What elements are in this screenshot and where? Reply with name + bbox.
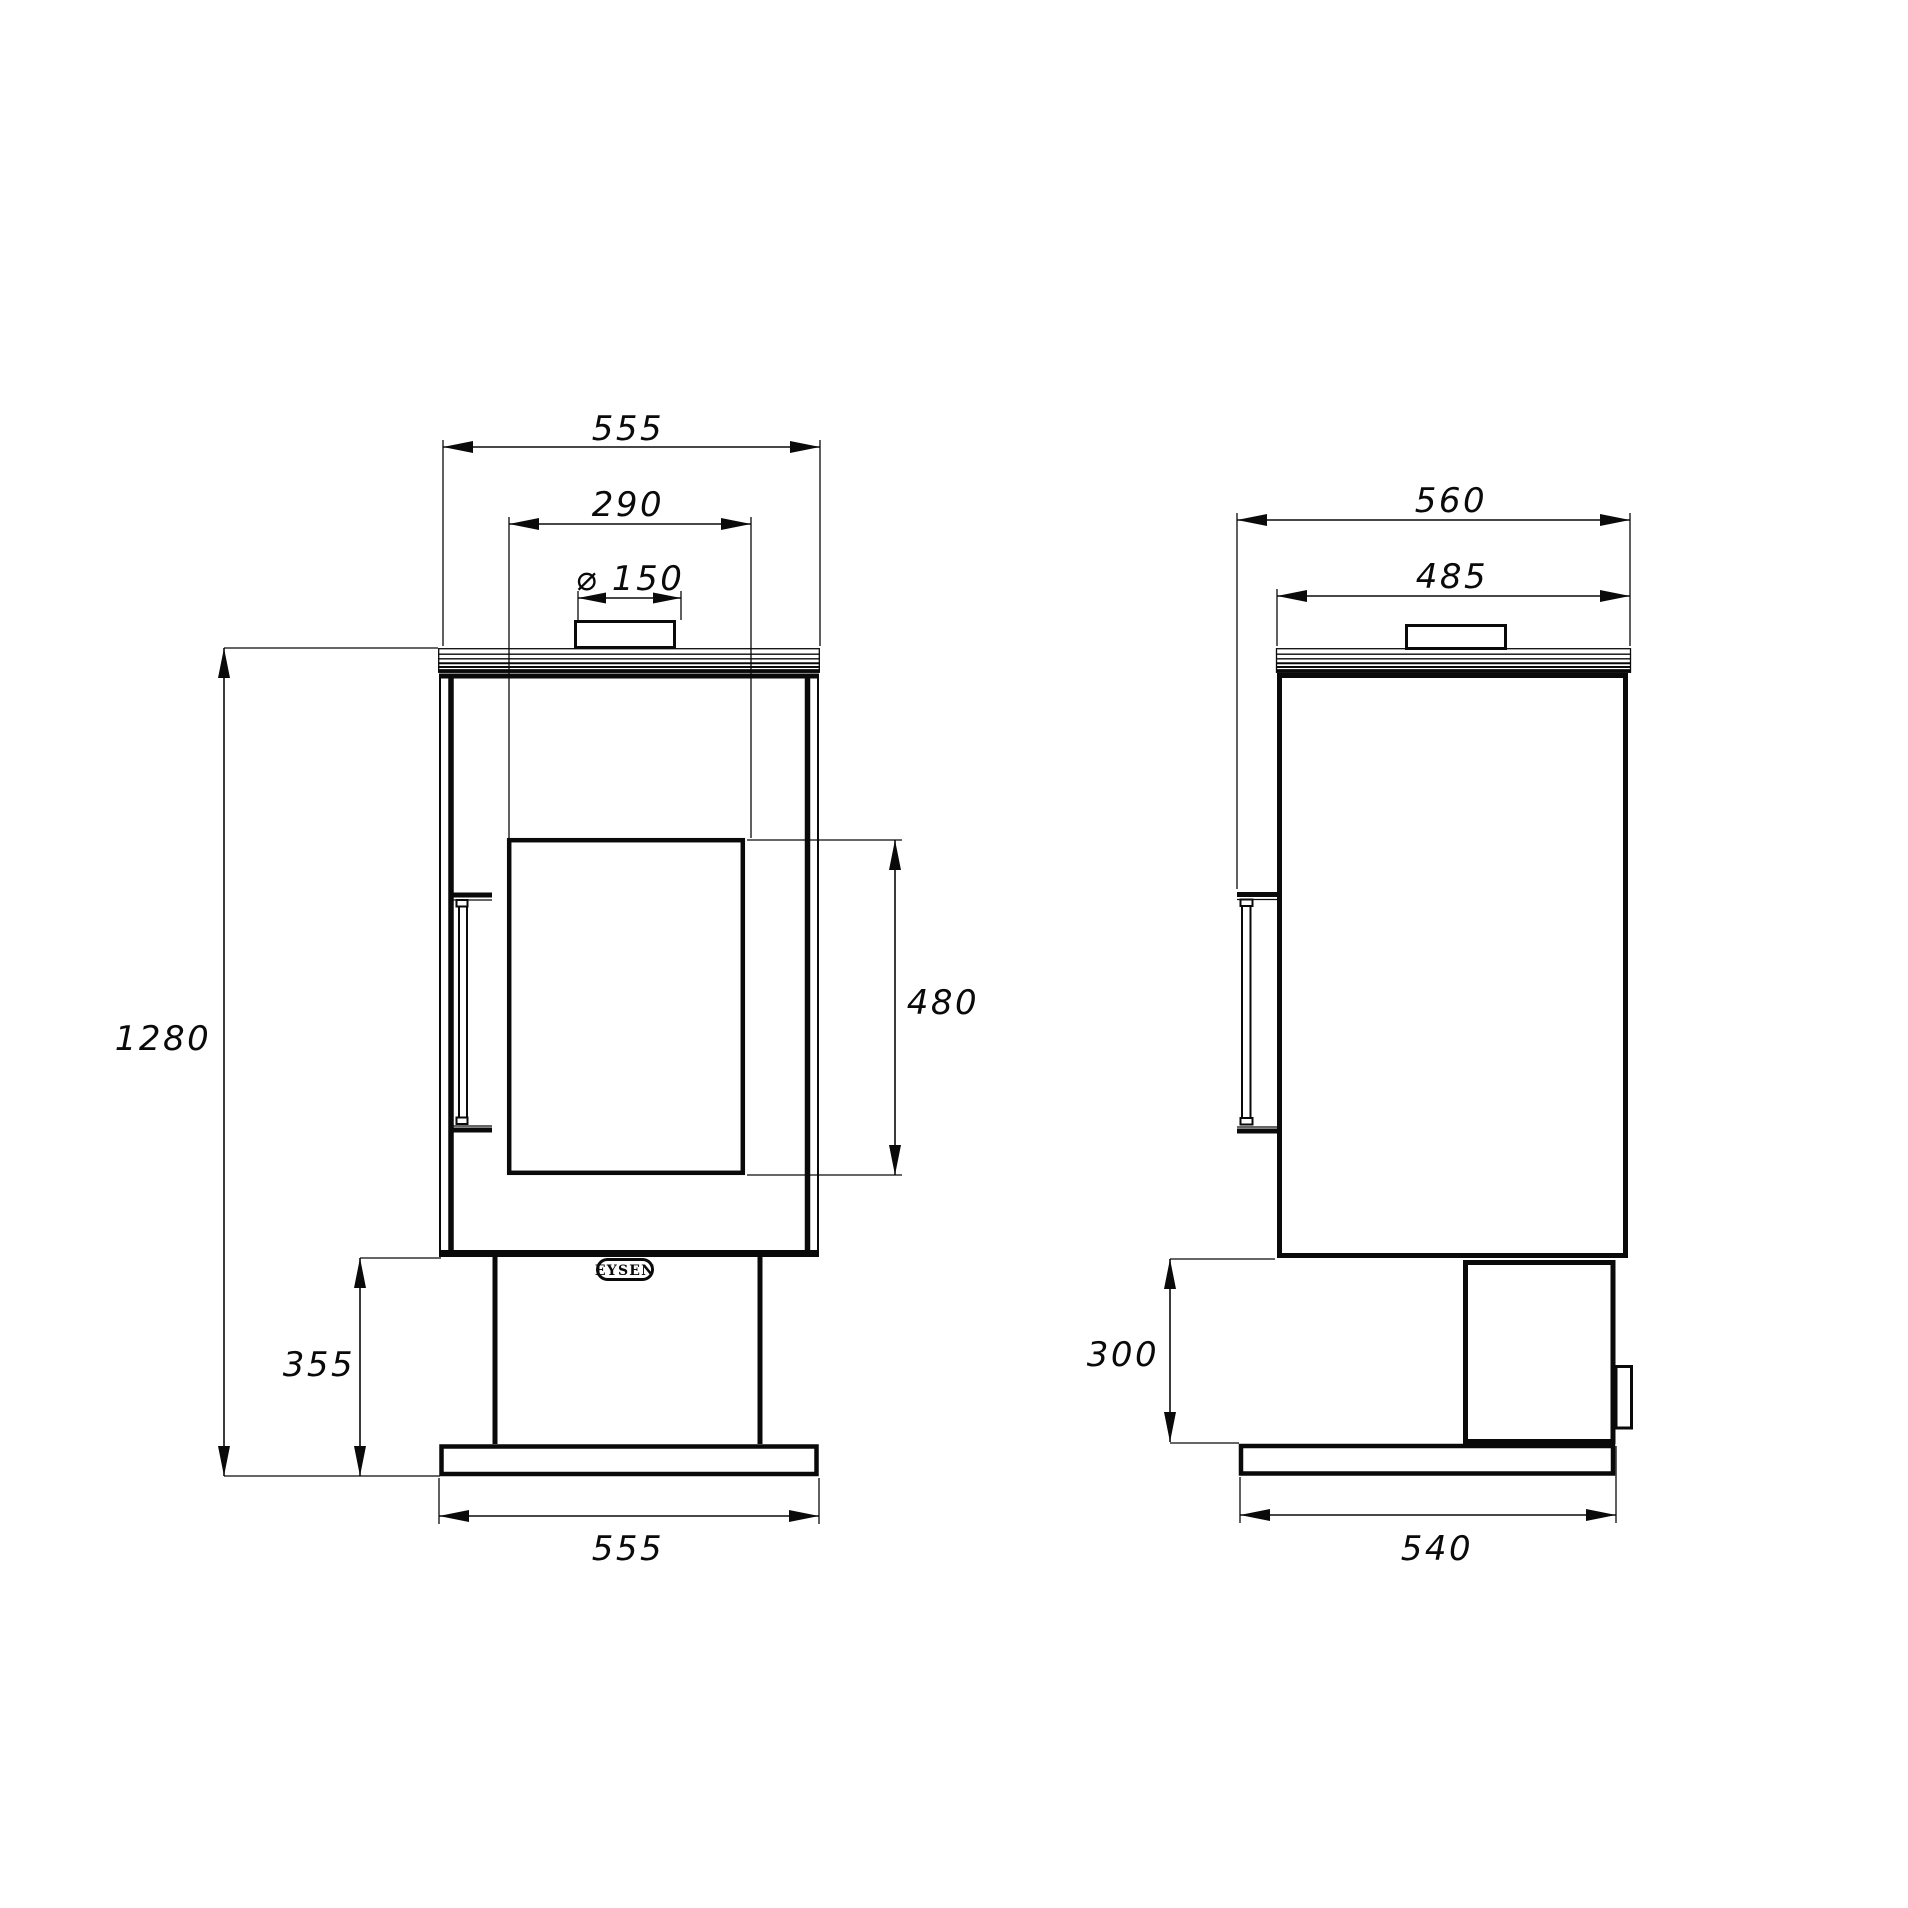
front-base-plate — [442, 1447, 817, 1475]
arrow-up-icon — [354, 1258, 366, 1288]
side-top-plate — [1276, 649, 1631, 673]
dimension-side-base-depth: 540 — [1240, 1446, 1616, 1569]
dimension-front-top-width: 555 — [443, 409, 820, 646]
dim-side-base-depth-label: 540 — [1401, 1529, 1473, 1569]
dimension-glass-height: 480 — [747, 840, 979, 1175]
dimension-glass-width: 290 — [509, 485, 751, 838]
arrow-right-icon — [790, 441, 820, 453]
arrow-right-icon — [721, 518, 751, 530]
front-view: EYSEN — [438, 622, 820, 1475]
arrow-left-icon — [1237, 514, 1267, 526]
arrow-up-icon — [218, 648, 230, 678]
side-door-handle — [1237, 892, 1279, 1134]
front-body-outline — [440, 675, 818, 1256]
arrow-up-icon — [889, 840, 901, 870]
arrow-left-icon — [1240, 1509, 1270, 1521]
arrow-up-icon — [1164, 1259, 1176, 1289]
front-pedestal — [495, 1257, 760, 1444]
dim-front-base-height-label: 355 — [283, 1345, 355, 1385]
arrow-down-icon — [889, 1145, 901, 1175]
dimension-side-base-height: 300 — [1087, 1259, 1275, 1443]
dim-front-overall-height-label: 1280 — [115, 1019, 212, 1059]
brand-logo-text: EYSEN — [595, 1263, 655, 1279]
side-pedestal — [1466, 1263, 1614, 1442]
side-ash-knob — [1616, 1367, 1632, 1429]
front-body — [439, 675, 819, 1256]
dim-side-overall-depth-label: 560 — [1415, 481, 1487, 521]
arrow-left-icon — [509, 518, 539, 530]
front-top-plate — [438, 649, 820, 673]
dimension-side-overall-depth: 560 — [1237, 481, 1630, 889]
dim-side-body-depth-label: 485 — [1416, 557, 1488, 597]
dim-front-top-width-label: 555 — [592, 409, 664, 449]
dimension-front-overall-height: 1280 — [115, 648, 440, 1476]
dimension-front-base-height: 355 — [283, 1258, 441, 1476]
arrow-left-icon — [443, 441, 473, 453]
brand-badge: EYSEN — [595, 1260, 655, 1280]
arrow-left-icon — [1277, 590, 1307, 602]
dim-glass-width-label: 290 — [592, 485, 664, 525]
side-view — [1237, 626, 1632, 1474]
dim-front-base-width-label: 555 — [592, 1529, 664, 1569]
dim-glass-height-label: 480 — [907, 983, 979, 1023]
dimension-flue-diameter: ⌀ 150 — [576, 559, 685, 620]
front-flue-collar — [576, 622, 675, 648]
side-body-outline — [1280, 676, 1626, 1256]
arrow-right-icon — [789, 1510, 819, 1522]
drawing-page: EYSEN — [0, 0, 1908, 1908]
dimension-side-body-depth: 485 — [1277, 557, 1630, 646]
arrow-right-icon — [1600, 590, 1630, 602]
front-door-handle — [452, 893, 492, 1133]
arrow-down-icon — [354, 1446, 366, 1476]
arrow-down-icon — [1164, 1412, 1176, 1442]
front-door-glass — [509, 840, 743, 1173]
arrow-left-icon — [439, 1510, 469, 1522]
dim-flue-diameter-label: ⌀ 150 — [576, 559, 685, 599]
dim-side-base-height-label: 300 — [1087, 1335, 1159, 1375]
side-flue-collar — [1407, 626, 1506, 649]
dimension-front-base-width: 555 — [439, 1478, 819, 1569]
technical-drawing: EYSEN — [0, 0, 1908, 1908]
arrow-down-icon — [218, 1446, 230, 1476]
side-base-plate — [1241, 1446, 1613, 1474]
arrow-right-icon — [1600, 514, 1630, 526]
arrow-right-icon — [1586, 1509, 1616, 1521]
